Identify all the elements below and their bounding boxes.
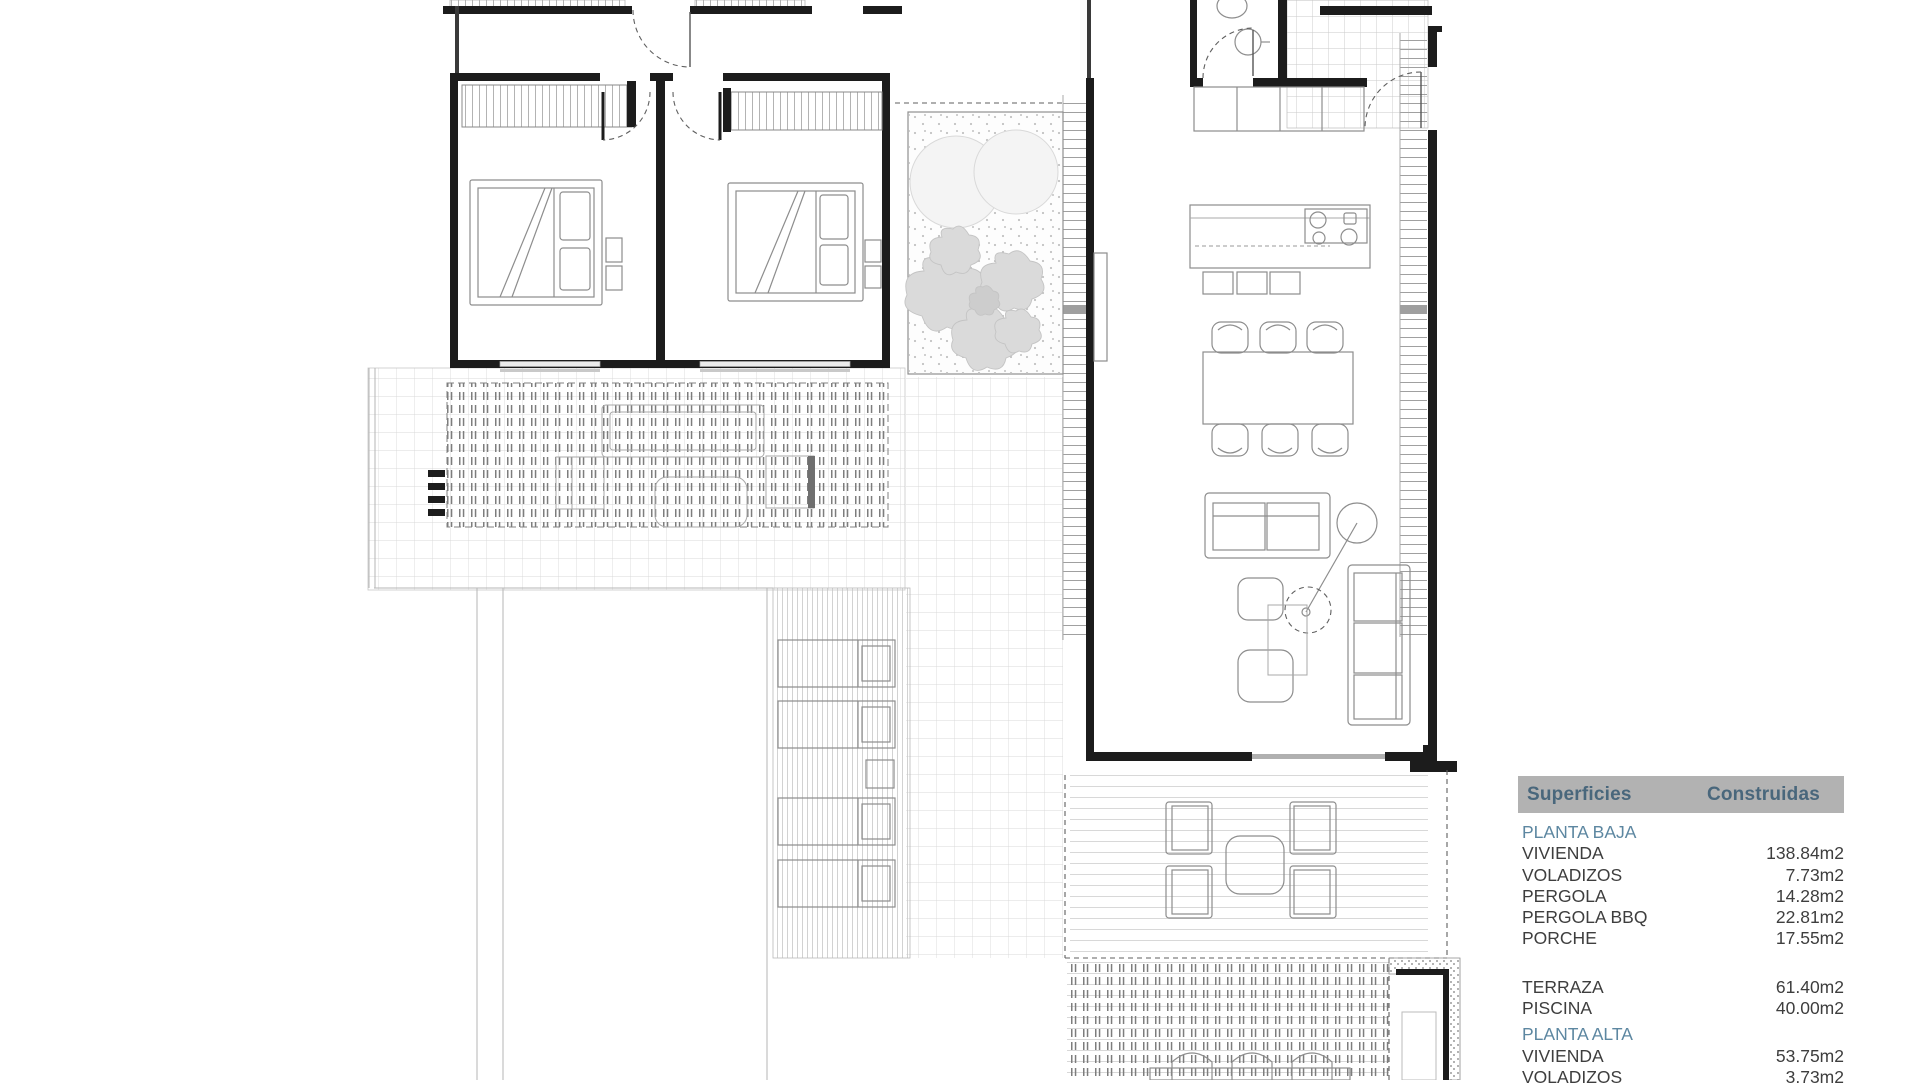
dining-set: [1203, 322, 1353, 456]
bathroom-sink: [1235, 29, 1261, 55]
surfaces-header-right: Construidas: [1707, 784, 1820, 806]
bedrooms-north-wall-b: [650, 73, 673, 81]
terrace-floors: [368, 0, 1428, 1080]
top-wall-2: [690, 6, 812, 14]
pool-water: [1402, 1012, 1436, 1080]
bar-stool-2: [1237, 272, 1267, 294]
surface-value: 53.75m2: [1776, 1046, 1844, 1067]
bar-stool-1: [1203, 272, 1233, 294]
porch-north-partition: [1087, 0, 1091, 78]
surface-label: VOLADIZOS: [1522, 1067, 1622, 1088]
surface-row: VOLADIZOS 7.73m2: [1518, 865, 1844, 886]
walkway-east-joint: [1400, 305, 1427, 314]
bar-stool-3: [1270, 272, 1300, 294]
surface-value: 40.00m2: [1776, 998, 1844, 1019]
bedrooms-north-wall-a: [450, 73, 600, 81]
surface-row: PORCHE 17.55m2: [1518, 928, 1844, 949]
bathroom-west-wall: [1190, 0, 1197, 82]
surface-label: TERRAZA: [1522, 977, 1604, 998]
living-west-wall: [1086, 78, 1094, 759]
walkway-courtyard: [1063, 95, 1086, 640]
burner-3: [1313, 232, 1325, 244]
terrace-tiles-center: [906, 377, 1063, 958]
bedroom-2-wardrobe: [730, 92, 882, 130]
bathroom-door-arc: [1203, 28, 1253, 78]
bedroom-1-nightstand-b: [606, 266, 622, 290]
bedroom-1-wardrobe-post: [627, 81, 636, 127]
corner-step-a: [1410, 761, 1457, 772]
bedroom-wing: [443, 0, 902, 372]
dining-table: [1203, 352, 1353, 424]
bedroom-2-bed: [728, 183, 863, 301]
dining-chairs-bottom: [1212, 424, 1348, 456]
bedroom-2-nightstand-b: [865, 266, 881, 288]
surfaces-panel: Superficies Construidas PLANTA BAJA VIVI…: [1518, 776, 1844, 1088]
east-wall-upper: [1428, 30, 1437, 67]
surface-value: 61.40m2: [1776, 977, 1844, 998]
bedroom-2-window: [700, 362, 850, 367]
coffee-table-frame: [1268, 605, 1307, 675]
surface-label: PERGOLA BBQ: [1522, 907, 1647, 928]
top-wall-3: [863, 6, 902, 14]
walkway-courtyard-joint: [1063, 305, 1086, 314]
east-wall-lower: [1428, 130, 1437, 759]
sofa-two-seat: [1205, 493, 1330, 558]
section-planta-baja: PLANTA BAJA VIVIENDA 138.84m2 VOLADIZOS …: [1518, 822, 1844, 950]
tv-unit: [1094, 253, 1107, 361]
surface-value: 7.73m2: [1786, 865, 1844, 886]
bathroom-south-wall-a: [1190, 78, 1203, 87]
bedroom-1-bed: [470, 180, 602, 305]
surface-row: PISCINA 40.00m2: [1518, 998, 1844, 1019]
bedrooms-partition: [656, 81, 665, 360]
surface-value: 14.28m2: [1776, 886, 1844, 907]
bedrooms-north-wall-c: [723, 73, 890, 81]
surface-label: PORCHE: [1522, 928, 1597, 949]
hob: [1305, 209, 1367, 243]
surface-value: 3.73m2: [1786, 1067, 1844, 1088]
sliding-glass-door[interactable]: [1252, 754, 1385, 759]
bedroom-2-wardrobe-post: [723, 88, 731, 132]
burner-1: [1310, 212, 1326, 228]
corner-step-b: [1423, 745, 1437, 761]
surface-value: 22.81m2: [1776, 907, 1844, 928]
surface-row: PERGOLA BBQ 22.81m2: [1518, 907, 1844, 928]
surface-value: 17.55m2: [1776, 928, 1844, 949]
entry-north-wall: [1320, 6, 1432, 15]
bedroom-1-nightstand-a: [606, 238, 622, 262]
courtyard-garden: [895, 103, 1063, 374]
living-south-wall-a: [1086, 752, 1252, 761]
walkway-east: [1400, 33, 1427, 637]
living-area: [1205, 493, 1410, 725]
tree-canopy-2: [974, 130, 1058, 214]
surface-row: VOLADIZOS 3.73m2: [1518, 1067, 1844, 1088]
hall-partition: [455, 6, 459, 75]
bbq-pergola-slats: [1067, 962, 1389, 1080]
bedroom-2-window-sill: [700, 369, 850, 372]
bedroom-2-nightstand-a: [865, 240, 881, 262]
coffee-table-2: [1238, 650, 1293, 702]
pergola-main: [428, 383, 888, 527]
lamp-area-circle: [1285, 587, 1331, 633]
lawn-border: [503, 588, 767, 1080]
bathroom-south-wall-b: [1253, 78, 1367, 87]
surface-row: PERGOLA 14.28m2: [1518, 886, 1844, 907]
surface-value: 138.84m2: [1766, 843, 1844, 864]
surface-label: VOLADIZOS: [1522, 865, 1622, 886]
porch-deck: [1070, 775, 1428, 958]
coffee-table-1: [1238, 578, 1283, 620]
surface-label: PISCINA: [1522, 998, 1592, 1019]
surfaces-header-left: Superficies: [1527, 784, 1632, 806]
section-planta-alta: PLANTA ALTA VIVIENDA 53.75m2 VOLADIZOS 3…: [1518, 1024, 1844, 1088]
bedroom-1-wardrobe: [462, 85, 632, 127]
surface-row: VIVIENDA 53.75m2: [1518, 1046, 1844, 1067]
sunbed-deck: [773, 588, 910, 958]
section-title: PLANTA BAJA: [1518, 822, 1844, 843]
surface-label: VIVIENDA: [1522, 843, 1604, 864]
surfaces-header: Superficies Construidas: [1518, 776, 1844, 813]
outdoor-side-table-right-edge: [808, 456, 815, 508]
bedrooms-east-wall: [882, 73, 890, 368]
section-exterior: TERRAZA 61.40m2 PISCINA 40.00m2: [1518, 977, 1844, 1020]
kitchen-island: [1190, 205, 1370, 268]
toilet: [1217, 0, 1247, 18]
bedroom-2-door-arc: [673, 92, 720, 140]
arc-lamp-stem: [1306, 523, 1357, 612]
surface-row: VIVIENDA 138.84m2: [1518, 843, 1844, 864]
dining-chairs-top: [1212, 322, 1343, 353]
surface-row: TERRAZA 61.40m2: [1518, 977, 1844, 998]
bedroom-1-window: [500, 362, 600, 367]
hall-door-arc: [633, 10, 690, 67]
surface-label: PERGOLA: [1522, 886, 1607, 907]
top-wall-1: [443, 6, 632, 14]
bedroom-1-window-sill: [500, 369, 600, 372]
bedrooms-west-wall: [450, 73, 458, 368]
section-title: PLANTA ALTA: [1518, 1024, 1844, 1045]
bathroom-east-wall: [1278, 0, 1287, 82]
surface-label: VIVIENDA: [1522, 1046, 1604, 1067]
